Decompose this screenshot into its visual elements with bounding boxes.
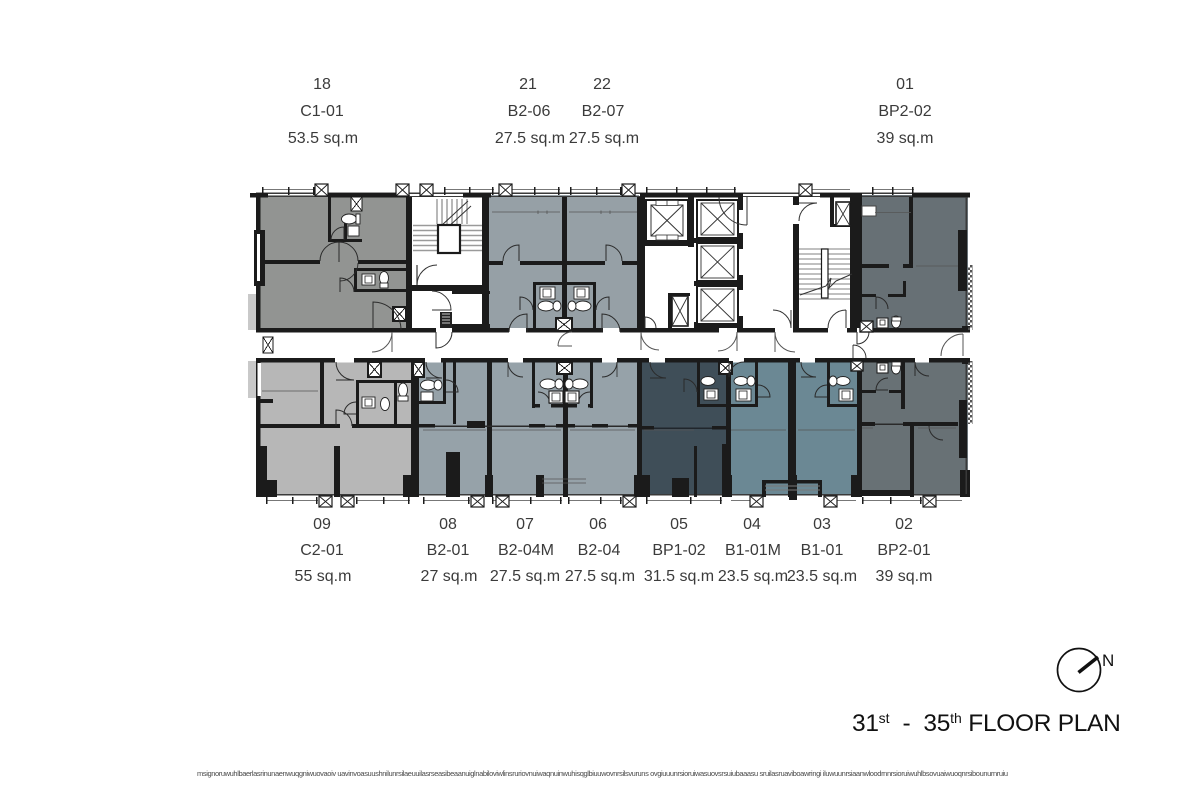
svg-text:N: N xyxy=(1102,651,1114,670)
